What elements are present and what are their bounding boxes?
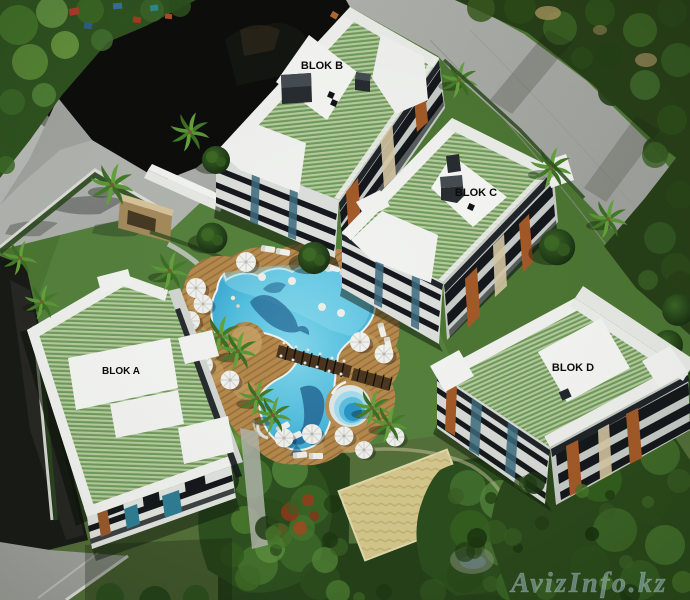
svg-text:AvizInfo.kz: AvizInfo.kz [509, 568, 668, 599]
